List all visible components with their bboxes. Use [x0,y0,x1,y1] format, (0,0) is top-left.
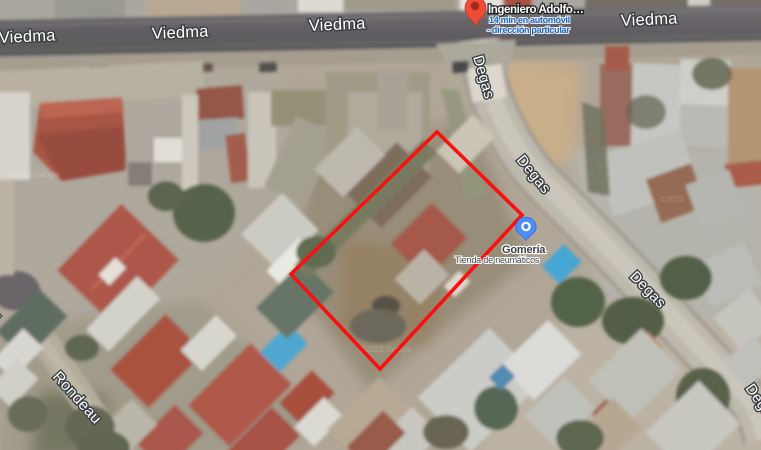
svg-text:Viedma: Viedma [0,27,57,47]
svg-text:©2023: ©2023 [660,195,684,204]
svg-text:Tienda de neumáticos: Tienda de neumáticos [455,255,540,265]
svg-text:Viedma: Viedma [308,15,366,35]
svg-text:©2023 Google: ©2023 Google [360,345,412,354]
svg-text:©2023 Google: ©2023 Google [8,170,60,179]
svg-text:- dirección particular: - dirección particular [487,25,570,35]
svg-text:Viedma: Viedma [151,23,209,43]
svg-text:Viedma: Viedma [620,10,678,30]
svg-text:14 min en automóvil: 14 min en automóvil [489,15,570,25]
